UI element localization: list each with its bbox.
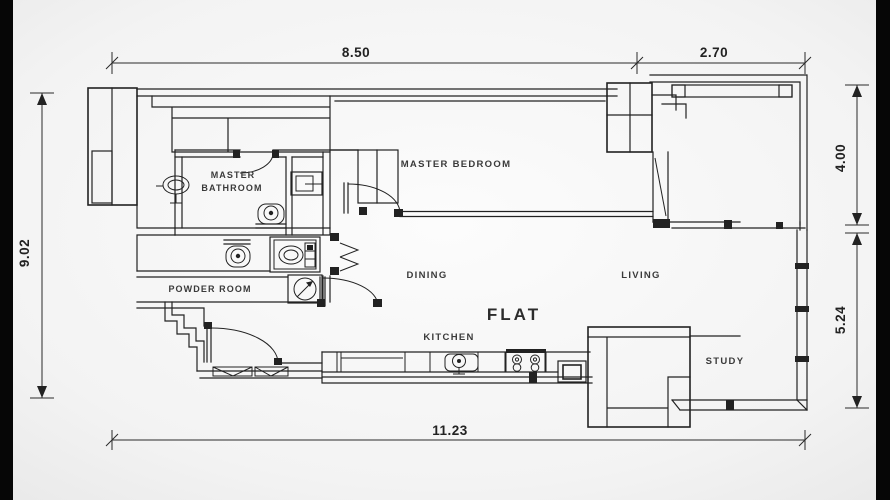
floor-plan-canvas: 8.50 2.70 9.02 4.00 5.24 11.23 MASTER BE… (0, 0, 890, 500)
label-master-bedroom: MASTER BEDROOM (401, 159, 512, 170)
dim-label-bottom: 11.23 (432, 423, 468, 438)
label-powder-room: POWDER ROOM (168, 284, 251, 294)
dim-label-top: 8.50 (342, 45, 370, 60)
dim-label-left: 9.02 (17, 239, 32, 267)
label-master-bathroom-2: BATHROOM (201, 183, 262, 193)
label-master-bathroom-1: MASTER (211, 170, 256, 180)
label-study: STUDY (706, 356, 745, 367)
dim-label-balcony-top: 2.70 (700, 45, 728, 60)
label-dining: DINING (406, 270, 447, 281)
label-kitchen: KITCHEN (423, 332, 474, 343)
floor-plan-screenshot: 8.50 2.70 9.02 4.00 5.24 11.23 MASTER BE… (0, 0, 890, 500)
label-living: LIVING (621, 270, 660, 281)
label-flat-title: FLAT (487, 305, 541, 324)
letterbox-bar-right (876, 0, 890, 500)
dim-label-right-lower: 5.24 (833, 306, 848, 334)
letterbox-bar-left (0, 0, 13, 500)
dim-label-right-upper: 4.00 (833, 144, 848, 172)
